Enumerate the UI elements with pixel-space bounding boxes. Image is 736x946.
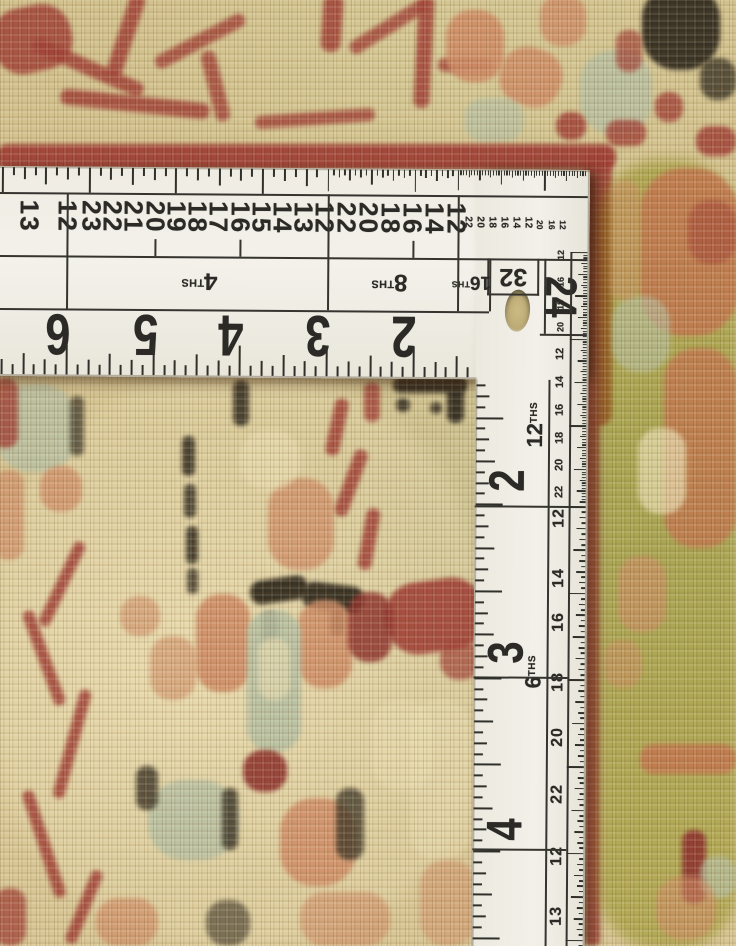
- ruler-tick: [582, 482, 586, 483]
- ruler-tick: [78, 168, 80, 176]
- ruler-tick: [271, 366, 273, 376]
- ruler-tick: [474, 677, 501, 679]
- ruler-tick: [315, 366, 317, 376]
- ruler-tick: [578, 604, 585, 606]
- ruler-tick: [580, 171, 581, 176]
- ruler-tick: [577, 777, 584, 779]
- l-square-ruler: 32 24 1312232221201918171615141312222018…: [0, 0, 736, 946]
- ruler-tick: [339, 169, 341, 177]
- ruler-tick: [580, 717, 585, 719]
- ruler-tick: [504, 171, 505, 176]
- ruler-tick: [574, 382, 586, 383]
- ruler-tick: [567, 766, 584, 768]
- ruler-line: [412, 241, 414, 258]
- ruler-tick: [581, 522, 586, 524]
- ruler-tick: [99, 168, 101, 176]
- scale-number: 20: [556, 322, 565, 332]
- ruler-tick: [580, 371, 587, 372]
- ruler-tick: [582, 442, 586, 443]
- ruler-tick: [577, 404, 586, 405]
- ruler-tick: [261, 361, 263, 376]
- ruler-tick: [402, 367, 404, 377]
- ruler-tick: [445, 367, 447, 377]
- ruler-tick: [120, 365, 122, 375]
- ruler-tick: [583, 363, 587, 364]
- ruler-tick: [458, 170, 459, 190]
- ruler-tick: [579, 517, 586, 519]
- ruler-tick: [583, 255, 587, 256]
- ruler-tick: [536, 171, 537, 176]
- ruler-tick: [582, 444, 586, 445]
- ruler-tick: [436, 170, 438, 181]
- scale-number: 20: [554, 459, 565, 471]
- ruler-tick: [475, 634, 494, 636]
- ruler-tick: [583, 257, 587, 258]
- ruler-tick: [473, 915, 486, 917]
- ruler-tick: [583, 347, 587, 348]
- ruler-tick: [474, 753, 483, 755]
- ruler-tick: [583, 276, 587, 277]
- ruler-tick: [582, 466, 586, 467]
- scale-number: 18: [487, 216, 497, 228]
- ruler-tick: [555, 171, 556, 178]
- ruler-tick: [580, 663, 585, 665]
- ruler-tick: [582, 455, 586, 456]
- ruler-tick: [580, 685, 585, 687]
- ruler-tick: [579, 782, 584, 784]
- ruler-tick: [473, 883, 482, 885]
- ruler-tick: [250, 366, 252, 376]
- ruler-tick: [569, 506, 586, 508]
- ruler-tick: [474, 731, 483, 733]
- ruler-tick: [452, 170, 454, 176]
- ruler-tick: [581, 587, 586, 589]
- ruler-tick: [579, 837, 584, 839]
- ruler-tick: [473, 937, 500, 939]
- ruler-tick: [490, 170, 491, 177]
- ruler-tick: [121, 168, 123, 176]
- ruler-tick: [87, 360, 89, 375]
- ruler-tick: [566, 940, 583, 942]
- ruler-tick: [391, 362, 393, 377]
- ruler-tick: [566, 853, 583, 855]
- ruler-tick: [412, 347, 414, 377]
- ruler-tick: [132, 168, 134, 185]
- ruler-tick: [576, 571, 585, 573]
- ruler-tick: [577, 842, 584, 844]
- ruler-tick: [581, 533, 586, 535]
- scale-number: 12: [523, 217, 533, 229]
- ruler-tick: [580, 393, 587, 394]
- ruler-tick: [578, 647, 585, 649]
- ruler-tick: [473, 850, 500, 852]
- ruler-tick: [476, 504, 503, 506]
- ruler-tick: [473, 829, 486, 831]
- ruler-tick: [583, 325, 587, 326]
- ruler-tick: [109, 354, 111, 375]
- ruler-tick: [475, 601, 484, 603]
- ruler-tick: [525, 171, 526, 176]
- scale-number: 18: [557, 300, 566, 310]
- scale-number: 22: [463, 216, 473, 228]
- ruler-tick: [580, 609, 585, 611]
- ruler-tick: [474, 688, 483, 690]
- ruler-tick: [239, 346, 241, 376]
- ruler-tick: [404, 170, 406, 178]
- ruler-tick: [582, 472, 586, 473]
- ruler-tick: [582, 396, 586, 397]
- ruler-tick: [576, 658, 585, 660]
- ruler-tick: [76, 365, 78, 375]
- ruler-tick: [219, 169, 221, 186]
- ruler-tick: [456, 356, 458, 377]
- ruler-tick: [344, 169, 346, 175]
- ruler-tick: [563, 171, 564, 176]
- ruler-tick: [579, 750, 584, 752]
- ruler-tick: [509, 171, 510, 176]
- ruler-tick: [523, 171, 524, 181]
- ruler-tick: [447, 170, 449, 178]
- ruler-tick: [251, 169, 253, 177]
- ruler-tick: [387, 170, 389, 176]
- ruler-tick: [328, 169, 330, 191]
- ruler-tick: [580, 652, 585, 654]
- ruler-tick: [349, 169, 351, 180]
- ruler-tick: [579, 772, 584, 774]
- ruler-tick: [141, 365, 143, 375]
- ruler-tick: [474, 170, 475, 175]
- ruler-tick: [582, 388, 586, 389]
- ruler-tick: [33, 364, 35, 374]
- ruler-tick: [582, 474, 586, 475]
- ruler-tick: [576, 885, 583, 887]
- ruler-tick: [579, 501, 586, 502]
- ruler-tick: [393, 170, 395, 181]
- ruler-tick: [517, 171, 518, 176]
- ruler-tick: [561, 171, 562, 176]
- ruler-tick: [196, 354, 198, 375]
- ruler-tick: [154, 168, 156, 180]
- ruler-tick: [581, 511, 586, 513]
- ruler-tick: [347, 361, 349, 376]
- scale-number: 16: [551, 612, 567, 632]
- ruler-tick: [582, 434, 586, 435]
- ruler-tick: [576, 929, 583, 931]
- ruler-tick: [485, 170, 486, 175]
- ruler-tick: [474, 807, 493, 809]
- ruler-tick: [358, 367, 360, 377]
- ruler-tick: [580, 696, 585, 698]
- ruler-tick: [474, 785, 487, 787]
- ths-scale-label: 12THS: [524, 402, 546, 448]
- ruler-tick: [175, 168, 177, 193]
- scale-number: 13: [17, 200, 43, 233]
- ruler-tick: [473, 894, 492, 896]
- ruler-tick: [580, 642, 585, 644]
- ruler-tick: [580, 350, 587, 351]
- ruler-tick: [230, 169, 232, 177]
- ruler-tick: [547, 171, 548, 176]
- ruler-tick: [414, 170, 416, 192]
- ruler-tick: [316, 169, 318, 177]
- ruler-tick: [582, 417, 586, 418]
- ruler-tick: [474, 710, 483, 712]
- ruler-tick: [534, 171, 535, 178]
- ruler-tick: [574, 831, 583, 833]
- ruler-box-32: 32: [487, 258, 539, 295]
- ruler-tick: [431, 170, 433, 176]
- ruler-tick: [582, 385, 586, 386]
- ruler-tick: [583, 366, 587, 367]
- ruler-line: [0, 255, 587, 261]
- scale-number: 16: [499, 216, 509, 228]
- ruler-tick: [475, 536, 484, 538]
- scale-number: 13: [549, 906, 565, 926]
- ruler-tick: [582, 398, 586, 399]
- ruler-tick: [475, 590, 502, 592]
- ruler-tick: [305, 169, 307, 186]
- ruler-tick: [583, 355, 587, 356]
- ruler-tick: [583, 290, 587, 291]
- ruler-tick: [501, 170, 502, 184]
- ruler-tick: [475, 569, 488, 571]
- ruler-tick: [420, 170, 422, 176]
- ruler-tick: [579, 880, 584, 882]
- ruler-line: [457, 195, 460, 311]
- ruler-tick: [581, 577, 586, 579]
- ruler-tick: [377, 170, 379, 176]
- ruler-tick: [583, 314, 587, 315]
- ruler-line: [239, 240, 241, 257]
- ruler-tick: [143, 168, 145, 176]
- ruler-tick: [295, 169, 297, 177]
- ruler-tick: [475, 558, 484, 560]
- ruler-tick: [442, 170, 444, 176]
- ruler-tick: [326, 346, 328, 376]
- ruler-tick: [583, 298, 587, 299]
- ruler-tick: [482, 170, 483, 175]
- ruler-tick: [582, 496, 586, 497]
- ruler-tick: [583, 341, 587, 342]
- ruler-tick: [583, 304, 587, 305]
- ruler-tick: [583, 268, 587, 269]
- ruler-tick: [581, 555, 586, 557]
- ruler-tick: [579, 858, 584, 860]
- scale-number: 12: [558, 220, 567, 230]
- ruler-tick: [476, 417, 503, 419]
- rug-photo-scene: 32 24 1312232221201918171615141312222018…: [0, 0, 736, 946]
- ruler-tick: [273, 169, 275, 177]
- ruler-tick: [573, 636, 585, 638]
- ruler-tick: [582, 461, 586, 462]
- ruler-tick: [582, 401, 586, 402]
- ruler-tick: [174, 360, 176, 375]
- scale-number: 16: [547, 220, 556, 230]
- ruler-tick: [293, 366, 295, 376]
- ruler-tick: [582, 412, 586, 413]
- ruler-tick: [583, 344, 587, 345]
- ruler-tick: [333, 169, 335, 175]
- ruler-tick: [544, 171, 545, 191]
- ruler-tick: [575, 788, 584, 790]
- ruler-tick: [581, 566, 586, 568]
- ruler-tick: [579, 815, 584, 817]
- ruler-tick: [582, 463, 586, 464]
- ruler-tick: [581, 306, 588, 307]
- scale-number: 22: [550, 784, 566, 804]
- ruler-tick: [572, 810, 584, 812]
- ruler-tick: [474, 796, 483, 798]
- ruler-tick: [409, 170, 411, 176]
- ruler-tick: [369, 356, 371, 377]
- scale-number: 14: [551, 568, 567, 588]
- ruler-tick: [67, 167, 69, 179]
- ruler-tick: [582, 499, 586, 500]
- ruler-tick: [476, 406, 485, 408]
- ruler-tick: [577, 755, 584, 757]
- ruler-tick: [582, 488, 586, 489]
- ruler-tick: [582, 390, 586, 391]
- ruler-tick: [583, 323, 587, 324]
- ruler-tick: [576, 907, 583, 909]
- ruler-tick: [585, 171, 586, 176]
- ruler-tick: [240, 169, 242, 181]
- ruler-tick: [574, 875, 583, 877]
- ruler-tick: [468, 170, 469, 177]
- ruler-tick: [573, 549, 585, 551]
- ruler-tick: [579, 826, 584, 828]
- ruler-tick: [582, 477, 586, 478]
- ruler-tick: [579, 869, 584, 871]
- ruler-tick: [304, 361, 306, 376]
- ruler-tick: [581, 544, 586, 546]
- ruler-tick: [479, 170, 480, 180]
- ruler-tick: [55, 364, 57, 374]
- ruler-tick: [579, 848, 584, 850]
- ruler-tick: [577, 864, 584, 866]
- ruler-tick: [467, 367, 469, 377]
- ruler-tick: [579, 539, 586, 541]
- ruler-tick: [163, 365, 165, 375]
- ruler-tick: [110, 168, 112, 180]
- ruler-tick: [583, 266, 587, 267]
- ruler-tick: [582, 493, 586, 494]
- ruler-tick: [475, 579, 484, 581]
- ruler-line: [540, 334, 587, 336]
- ruler-tick: [475, 612, 488, 614]
- ruler-tick: [360, 170, 362, 178]
- ruler-tick: [475, 623, 484, 625]
- ruler-tick: [579, 761, 584, 763]
- ruler-tick: [575, 295, 587, 296]
- ruler-tick: [583, 379, 587, 380]
- ruler-tick: [570, 252, 587, 253]
- ruler-tick: [282, 355, 284, 376]
- scale-number: 20: [550, 727, 566, 747]
- ruler-tick: [471, 170, 472, 175]
- ths-scale-label: 6THS: [522, 655, 544, 689]
- ruler-tick: [569, 171, 570, 176]
- ruler-tick: [577, 799, 584, 801]
- ruler-tick: [580, 598, 585, 600]
- ruler-tick: [583, 293, 587, 294]
- ruler-tick: [382, 170, 384, 178]
- ruler-tick: [567, 679, 584, 681]
- ruler-tick: [475, 547, 494, 549]
- ruler-tick: [476, 514, 485, 516]
- ruler-tick: [583, 260, 587, 261]
- ruler-tick: [463, 170, 464, 175]
- ruler-tick: [13, 167, 15, 175]
- ruler-tick: [582, 439, 586, 440]
- ruler-tick: [578, 360, 587, 361]
- ruler-tick: [493, 170, 494, 175]
- ruler-tick: [515, 171, 516, 176]
- ruler-tick: [582, 171, 583, 176]
- ruler-tick: [583, 282, 587, 283]
- ruler-tick: [583, 333, 587, 334]
- ruler-tick: [576, 528, 585, 530]
- ruler-tick: [476, 471, 485, 473]
- ruler-tick: [262, 169, 264, 194]
- ruler-tick: [582, 450, 586, 451]
- ruler-line: [489, 258, 491, 311]
- ruler-tick: [473, 818, 482, 820]
- ruler-tick: [186, 168, 188, 176]
- ruler-tick: [580, 739, 585, 741]
- ruler-tick: [579, 458, 586, 459]
- inch-number: 5: [133, 305, 159, 363]
- ruler-tick: [487, 170, 488, 175]
- ruler-tick: [371, 170, 373, 185]
- ruler-tick: [577, 491, 586, 492]
- ruler-tick: [574, 171, 575, 176]
- ruler-line: [66, 192, 69, 308]
- ruler-tick: [473, 861, 482, 863]
- ruler-tick: [558, 171, 559, 176]
- ruler-tick: [582, 407, 586, 408]
- ruler-tick: [434, 362, 436, 377]
- scale-number: 18: [555, 432, 566, 444]
- ruler-tick: [89, 168, 91, 193]
- ruler-tick: [476, 493, 485, 495]
- ruler-tick: [506, 171, 507, 176]
- ruler-tick: [574, 918, 583, 920]
- ruler-line: [154, 239, 156, 256]
- ruler-tick: [580, 707, 585, 709]
- ruler-tick: [474, 742, 487, 744]
- ruler-tick: [579, 804, 584, 806]
- ruler-tick: [581, 285, 588, 286]
- ruler-tick: [152, 345, 154, 375]
- ruler-tick: [583, 301, 587, 302]
- ruler-tick: [398, 170, 400, 176]
- ruler-tick: [473, 926, 482, 928]
- scale-number: 20: [475, 216, 485, 228]
- ruler-tick: [539, 171, 540, 176]
- ruler-tick: [355, 169, 357, 175]
- ruler-tick: [582, 453, 586, 454]
- ruler-tick: [165, 168, 167, 176]
- ruler-tick: [568, 593, 585, 595]
- ruler-tick: [56, 167, 58, 175]
- ruler-tick: [542, 171, 543, 176]
- ruler-tick: [571, 896, 583, 898]
- ruler-tick: [45, 167, 47, 184]
- ruler-tick: [582, 420, 586, 421]
- ruler-tick: [98, 365, 100, 375]
- ruler-tick: [380, 367, 382, 377]
